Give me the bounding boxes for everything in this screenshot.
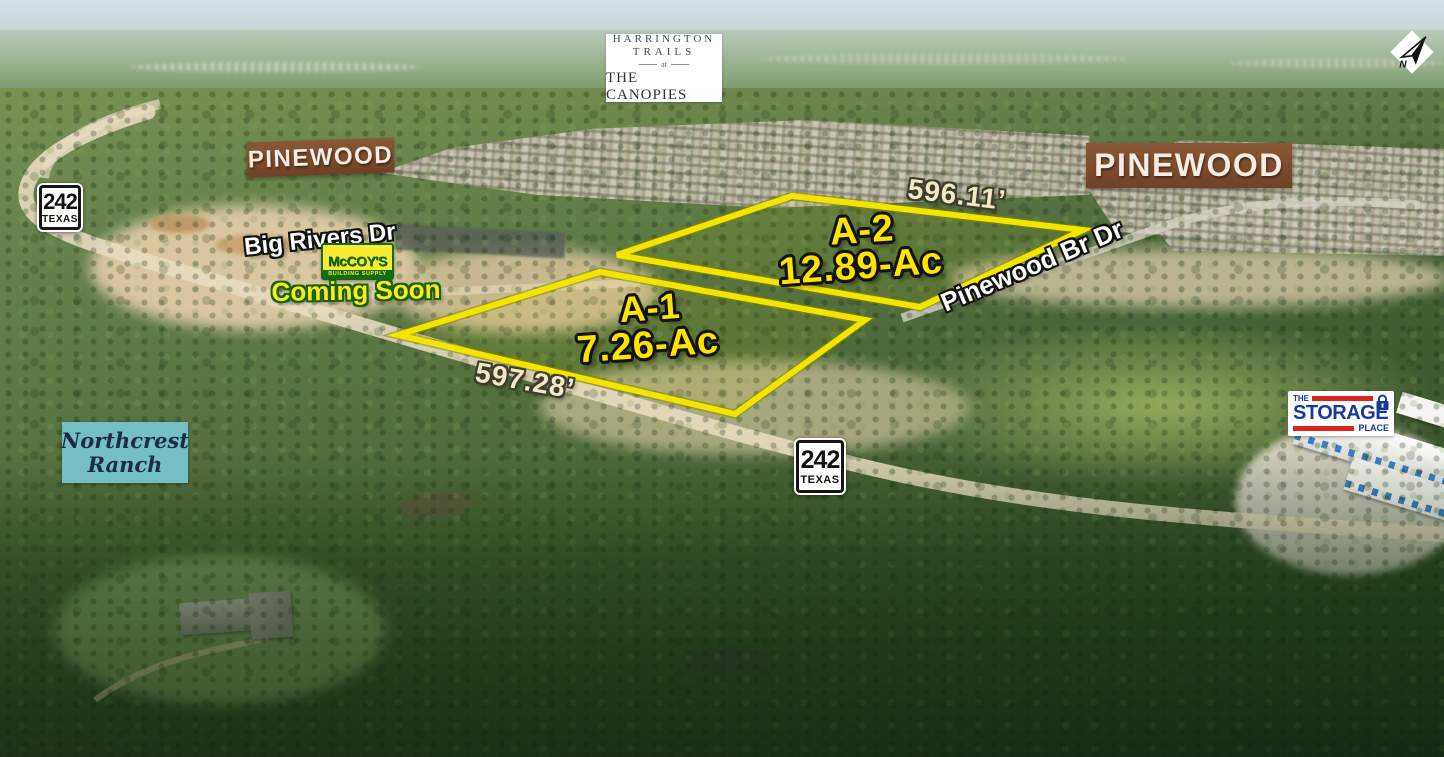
storage-place-logo: THE STORAGE PLACE bbox=[1288, 391, 1394, 436]
highway-shield-242-left: 242 TEXAS bbox=[37, 183, 83, 232]
highway-shield-242-center-inner: 242 TEXAS bbox=[796, 440, 844, 493]
harrington-line4: THE CANOPIES bbox=[606, 70, 722, 104]
harrington-line2: TRAILS bbox=[633, 46, 696, 58]
padlock-keyhole bbox=[1382, 404, 1384, 408]
highway-state: TEXAS bbox=[42, 215, 78, 225]
pinewood-banner-left: PINEWOOD bbox=[246, 137, 394, 177]
highway-state: TEXAS bbox=[800, 475, 839, 486]
northcrest-line1: Northcrest bbox=[61, 429, 189, 452]
harrington-trails-logo: HARRINGTON TRAILS at THE CANOPIES bbox=[606, 34, 722, 102]
aerial-site-map: HARRINGTON TRAILS at THE CANOPIES N 242 … bbox=[0, 0, 1444, 757]
parcels-layer bbox=[0, 0, 1444, 757]
highway-number: 242 bbox=[801, 448, 840, 473]
highway-shield-242-left-inner: 242 TEXAS bbox=[39, 185, 81, 230]
padlock-icon bbox=[1375, 394, 1390, 411]
rule-right bbox=[671, 64, 689, 65]
coming-soon-label: Coming Soon bbox=[271, 274, 440, 308]
highway-shield-242-center: 242 TEXAS bbox=[794, 438, 846, 495]
compass-n-label: N bbox=[1399, 59, 1407, 70]
pinewood-banner-right: PINEWOOD bbox=[1086, 143, 1292, 188]
storage-red-bar-bottom bbox=[1293, 426, 1354, 431]
rule-left bbox=[639, 64, 657, 65]
harrington-at-row: at bbox=[635, 60, 693, 69]
storage-red-bar-top bbox=[1312, 396, 1373, 401]
mccoys-name: McCOY'S bbox=[328, 252, 387, 270]
northcrest-ranch-box: Northcrest Ranch bbox=[62, 422, 188, 483]
north-arrow: N bbox=[1384, 24, 1440, 80]
northcrest-line2: Ranch bbox=[88, 453, 163, 476]
storage-word-place: PLACE bbox=[1358, 423, 1389, 433]
storage-row-bottom: PLACE bbox=[1293, 423, 1389, 433]
harrington-line1: HARRINGTON bbox=[613, 33, 716, 45]
storage-word-storage: STORAGE bbox=[1293, 403, 1388, 423]
highway-number: 242 bbox=[43, 191, 77, 213]
harrington-line3: at bbox=[661, 60, 667, 69]
